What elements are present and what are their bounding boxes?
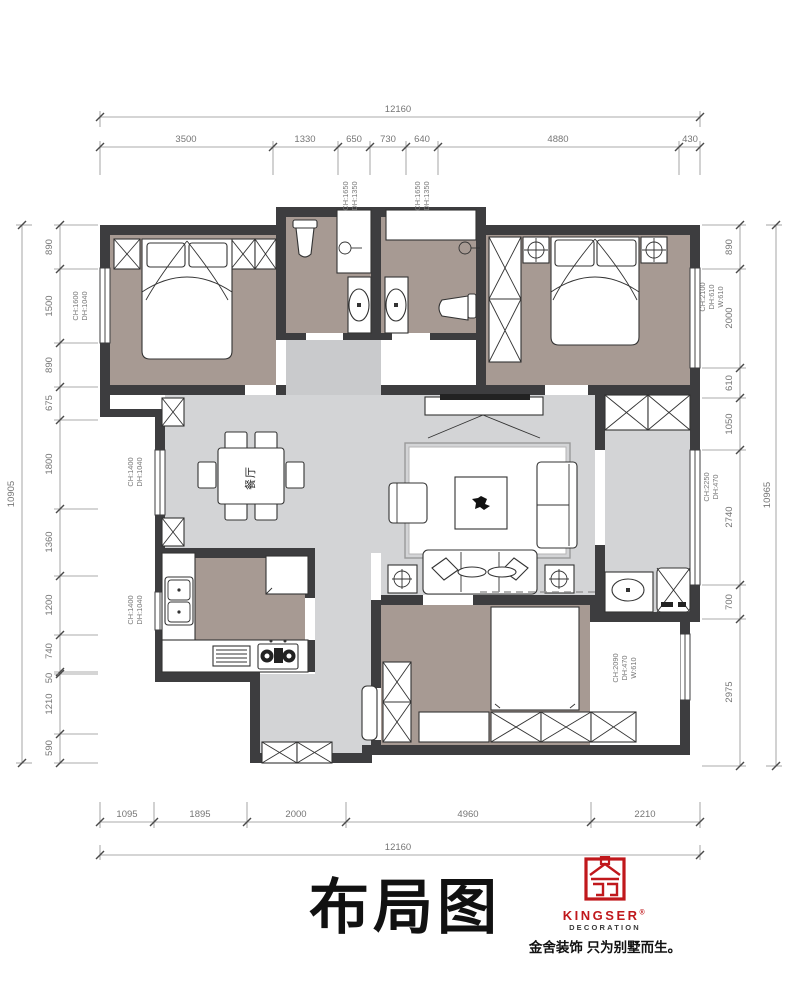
dim-left-total <box>16 221 32 767</box>
entry-door-leaf <box>362 686 377 740</box>
svg-text:W:610: W:610 <box>716 286 725 307</box>
sofa <box>423 550 537 594</box>
svg-text:DH:1040: DH:1040 <box>80 291 89 320</box>
kingser-seal-icon <box>583 856 627 904</box>
svg-text:1050: 1050 <box>724 413 735 434</box>
armchair <box>389 483 427 523</box>
floor-plan-page: 餐厅 <box>0 0 800 981</box>
dim-right-total-label: 10965 <box>762 482 773 508</box>
svg-text:1895: 1895 <box>189 809 210 820</box>
svg-text:890: 890 <box>44 357 55 373</box>
svg-text:430: 430 <box>682 134 698 145</box>
desk <box>419 712 489 742</box>
svg-text:CH:1650: CH:1650 <box>413 181 422 210</box>
floor-drain-washer <box>657 568 690 612</box>
floor-plan-drawing: 餐厅 <box>0 0 800 860</box>
balcony-window <box>690 450 700 585</box>
svg-text:DH:1040: DH:1040 <box>135 457 144 486</box>
svg-text:640: 640 <box>414 134 430 145</box>
loveseat <box>537 462 577 548</box>
svg-text:4880: 4880 <box>547 134 568 145</box>
bed-single <box>491 607 579 710</box>
dim-left-total-label: 10905 <box>6 481 17 507</box>
hall-window-cabinet <box>262 742 332 763</box>
svg-text:DH:610: DH:610 <box>707 284 716 309</box>
svg-text:1360: 1360 <box>44 531 55 552</box>
logo-tagline: 金舍装饰 只为别墅而生。 <box>520 936 690 956</box>
svg-text:890: 890 <box>44 239 55 255</box>
svg-text:730: 730 <box>380 134 396 145</box>
cooktop <box>258 640 298 670</box>
svg-text:650: 650 <box>346 134 362 145</box>
svg-text:1330: 1330 <box>294 134 315 145</box>
svg-text:DH:1040: DH:1040 <box>135 595 144 624</box>
side-table <box>388 565 417 593</box>
page-title: 布局图 <box>295 878 515 938</box>
kitchen-sink <box>165 577 193 625</box>
dining-room-label: 餐厅 <box>243 466 257 490</box>
vanity-basin <box>385 277 408 333</box>
svg-text:1095: 1095 <box>116 809 137 820</box>
svg-text:1200: 1200 <box>44 594 55 615</box>
hall-cabinet <box>383 662 411 742</box>
svg-text:1500: 1500 <box>44 295 55 316</box>
svg-text:50: 50 <box>44 673 55 684</box>
hall-floor-lower <box>260 674 371 753</box>
svg-text:700: 700 <box>724 594 735 610</box>
svg-text:DH:1350: DH:1350 <box>350 181 359 210</box>
svg-text:2975: 2975 <box>724 681 735 702</box>
hall-floor-upper <box>315 553 371 674</box>
svg-text:CH:2250: CH:2250 <box>702 472 711 501</box>
registered-mark: ® <box>640 910 648 917</box>
svg-text:DH:1350: DH:1350 <box>422 181 431 210</box>
svg-text:2210: 2210 <box>634 809 655 820</box>
svg-text:CH:1650: CH:1650 <box>341 181 350 210</box>
corridor-floor <box>286 340 381 395</box>
svg-text:DH:470: DH:470 <box>711 474 720 499</box>
dim-top-seg <box>96 141 704 175</box>
dining-window <box>155 450 165 515</box>
bed-double <box>551 237 639 345</box>
svg-text:890: 890 <box>724 239 735 255</box>
svg-text:1800: 1800 <box>44 453 55 474</box>
svg-text:2000: 2000 <box>724 307 735 328</box>
wardrobe <box>489 237 521 362</box>
svg-text:DH:470: DH:470 <box>620 655 629 680</box>
svg-text:590: 590 <box>44 740 55 756</box>
svg-text:CH:1600: CH:1600 <box>71 291 80 320</box>
svg-text:2740: 2740 <box>724 506 735 527</box>
svg-text:3500: 3500 <box>175 134 196 145</box>
ceiling-light-icon <box>641 237 667 263</box>
bed-double <box>142 239 232 359</box>
svg-text:CH:1400: CH:1400 <box>126 595 135 624</box>
bedroom1-window <box>100 268 110 343</box>
brand-logo: KINGSER® DECORATION 金舍装饰 只为别墅而生。 <box>520 856 690 956</box>
svg-text:1210: 1210 <box>44 693 55 714</box>
svg-text:CH:1400: CH:1400 <box>126 457 135 486</box>
svg-text:740: 740 <box>44 643 55 659</box>
svg-text:2000: 2000 <box>285 809 306 820</box>
svg-text:675: 675 <box>44 395 55 411</box>
coffee-table <box>455 477 507 529</box>
wardrobe <box>491 712 636 742</box>
svg-text:W:610: W:610 <box>629 657 638 678</box>
svg-text:610: 610 <box>724 375 735 391</box>
dim-bottom-total-label: 12160 <box>385 842 411 853</box>
bedroom3-window <box>680 634 690 700</box>
vent-grill <box>213 646 250 666</box>
svg-text:CH:2100: CH:2100 <box>698 282 707 311</box>
laundry-basin <box>605 572 653 612</box>
side-table <box>545 565 574 593</box>
dim-top-total-label: 12160 <box>385 104 411 115</box>
logo-brand-name: KINGSER® <box>520 909 690 923</box>
svg-text:4960: 4960 <box>457 809 478 820</box>
vanity-basin <box>348 277 371 333</box>
dim-bottom-seg <box>96 802 704 828</box>
ceiling-light-icon <box>523 237 549 263</box>
logo-subtitle: DECORATION <box>520 923 690 932</box>
svg-text:CH:2090: CH:2090 <box>611 653 620 682</box>
